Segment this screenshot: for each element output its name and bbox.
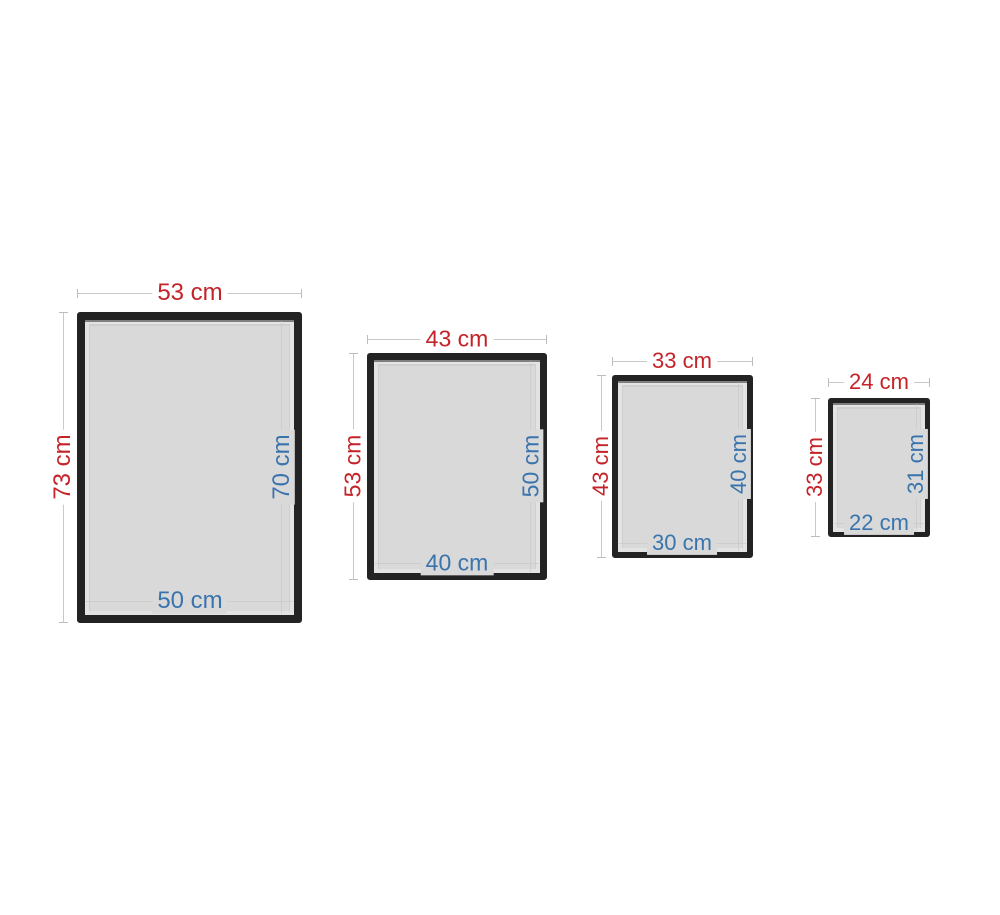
inner-width-label: 50 cm <box>152 588 227 614</box>
outer-height-label: 73 cm <box>50 429 76 504</box>
dim-tick <box>811 536 820 537</box>
frame-sheen <box>833 403 925 405</box>
frame-sheen <box>618 381 747 383</box>
dim-tick <box>828 378 829 387</box>
outer-height-label: 43 cm <box>589 431 613 501</box>
dim-tick <box>597 557 606 558</box>
dim-tick <box>811 398 820 399</box>
outer-height-label: 53 cm <box>340 430 365 503</box>
outer-width-label: 53 cm <box>152 280 227 306</box>
dim-tick <box>349 579 358 580</box>
dim-tick <box>301 289 302 298</box>
outer-width-label: 33 cm <box>647 349 717 373</box>
inner-width-label: 30 cm <box>647 531 717 555</box>
outer-height-label: 33 cm <box>803 432 827 502</box>
frame-sheen <box>374 360 540 362</box>
dim-tick <box>59 622 68 623</box>
dim-tick <box>929 378 930 387</box>
dim-tick <box>546 335 547 344</box>
frame-sheen <box>85 320 294 322</box>
dim-tick <box>752 357 753 366</box>
dim-tick <box>367 335 368 344</box>
inner-width-label: 40 cm <box>421 550 494 575</box>
inner-height-label: 70 cm <box>269 429 295 504</box>
dim-tick <box>612 357 613 366</box>
outer-width-label: 24 cm <box>844 370 914 394</box>
dim-tick <box>77 289 78 298</box>
dim-tick <box>597 375 606 376</box>
outer-width-label: 43 cm <box>421 326 494 351</box>
inner-width-label: 22 cm <box>844 511 914 535</box>
frame-dimensions-diagram: 53 cm 73 cm 70 cm 50 cm 43 cm 53 cm 50 c… <box>0 0 1000 915</box>
dim-tick <box>59 312 68 313</box>
inner-height-label: 50 cm <box>518 430 543 503</box>
dim-tick <box>349 353 358 354</box>
inner-height-label: 40 cm <box>727 429 751 499</box>
inner-height-label: 31 cm <box>904 429 928 499</box>
